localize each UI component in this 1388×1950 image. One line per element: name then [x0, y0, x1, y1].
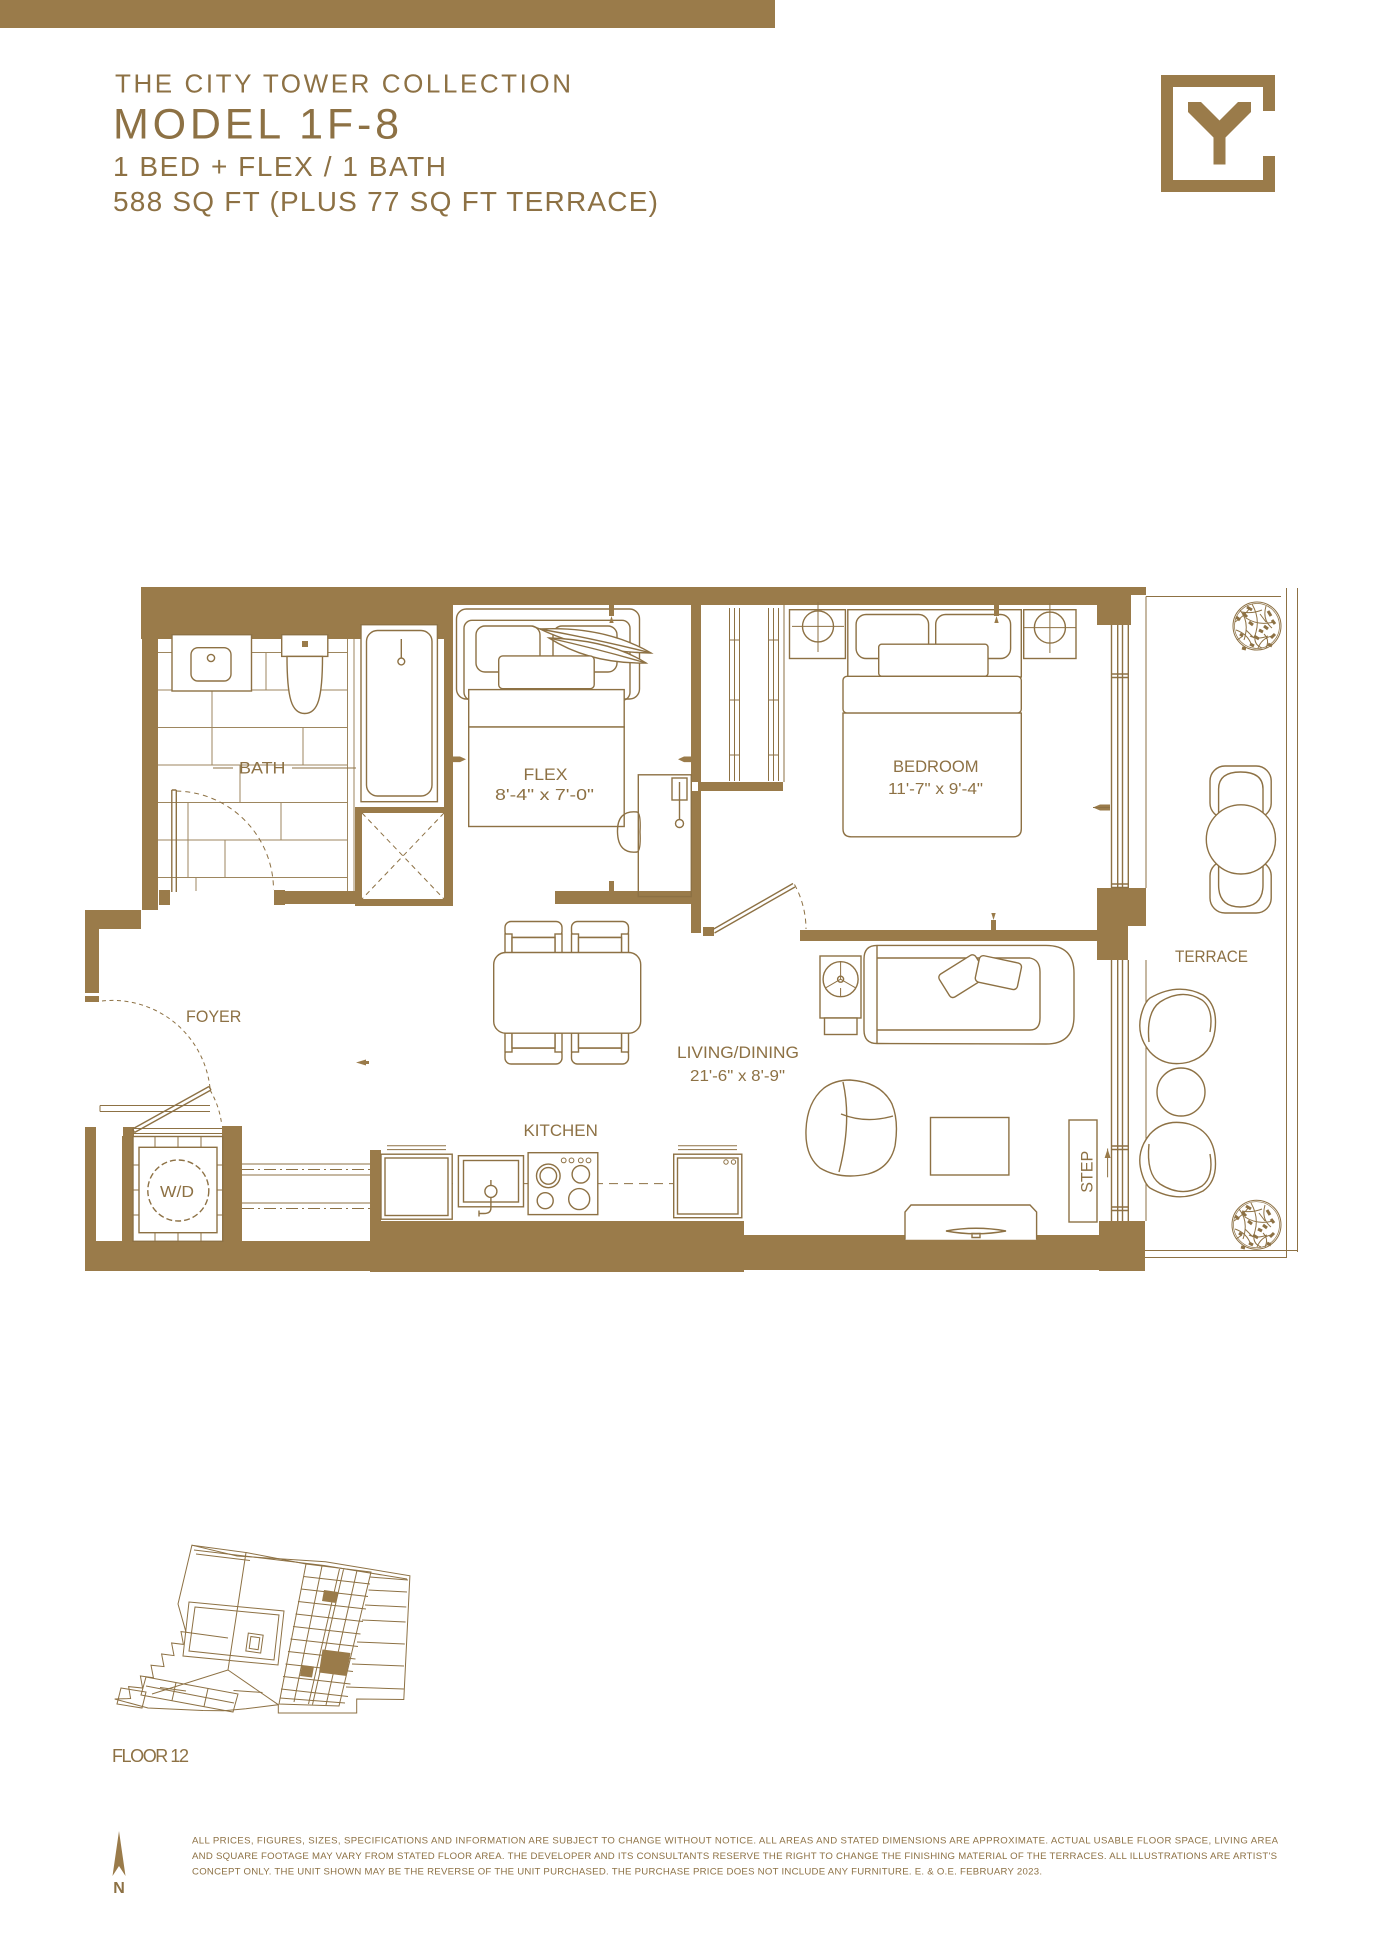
svg-text:21'-6" x 8'-9": 21'-6" x 8'-9" [690, 1068, 785, 1085]
svg-text:CONCEPT ONLY. THE UNIT SHOWN M: CONCEPT ONLY. THE UNIT SHOWN MAY BE THE … [192, 1867, 1042, 1878]
svg-text:8'-4" x 7'-0": 8'-4" x 7'-0" [495, 787, 594, 804]
svg-text:FOYER: FOYER [186, 1007, 241, 1026]
svg-text:588 SQ FT (PLUS 77 SQ FT TERRA: 588 SQ FT (PLUS 77 SQ FT TERRACE) [113, 186, 658, 217]
svg-text:FLOOR 12: FLOOR 12 [112, 1746, 189, 1766]
svg-text:KITCHEN: KITCHEN [524, 1121, 598, 1140]
svg-text:BATH: BATH [239, 759, 286, 778]
svg-text:11'-7" x 9'-4": 11'-7" x 9'-4" [888, 781, 983, 798]
svg-text:W/D: W/D [160, 1184, 194, 1201]
svg-text:ALL PRICES, FIGURES, SIZES, SP: ALL PRICES, FIGURES, SIZES, SPECIFICATIO… [192, 1836, 1279, 1847]
svg-text:STEP: STEP [1078, 1151, 1097, 1193]
svg-text:TERRACE: TERRACE [1175, 947, 1248, 966]
svg-text:FLEX: FLEX [524, 765, 568, 784]
svg-text:AND SQUARE FOOTAGE MAY VARY FR: AND SQUARE FOOTAGE MAY VARY FROM STATED … [192, 1851, 1277, 1862]
svg-text:LIVING/DINING: LIVING/DINING [677, 1043, 799, 1062]
svg-text:BEDROOM: BEDROOM [893, 757, 979, 776]
svg-text:1 BED + FLEX / 1 BATH: 1 BED + FLEX / 1 BATH [113, 151, 446, 182]
svg-text:N: N [113, 1880, 125, 1897]
